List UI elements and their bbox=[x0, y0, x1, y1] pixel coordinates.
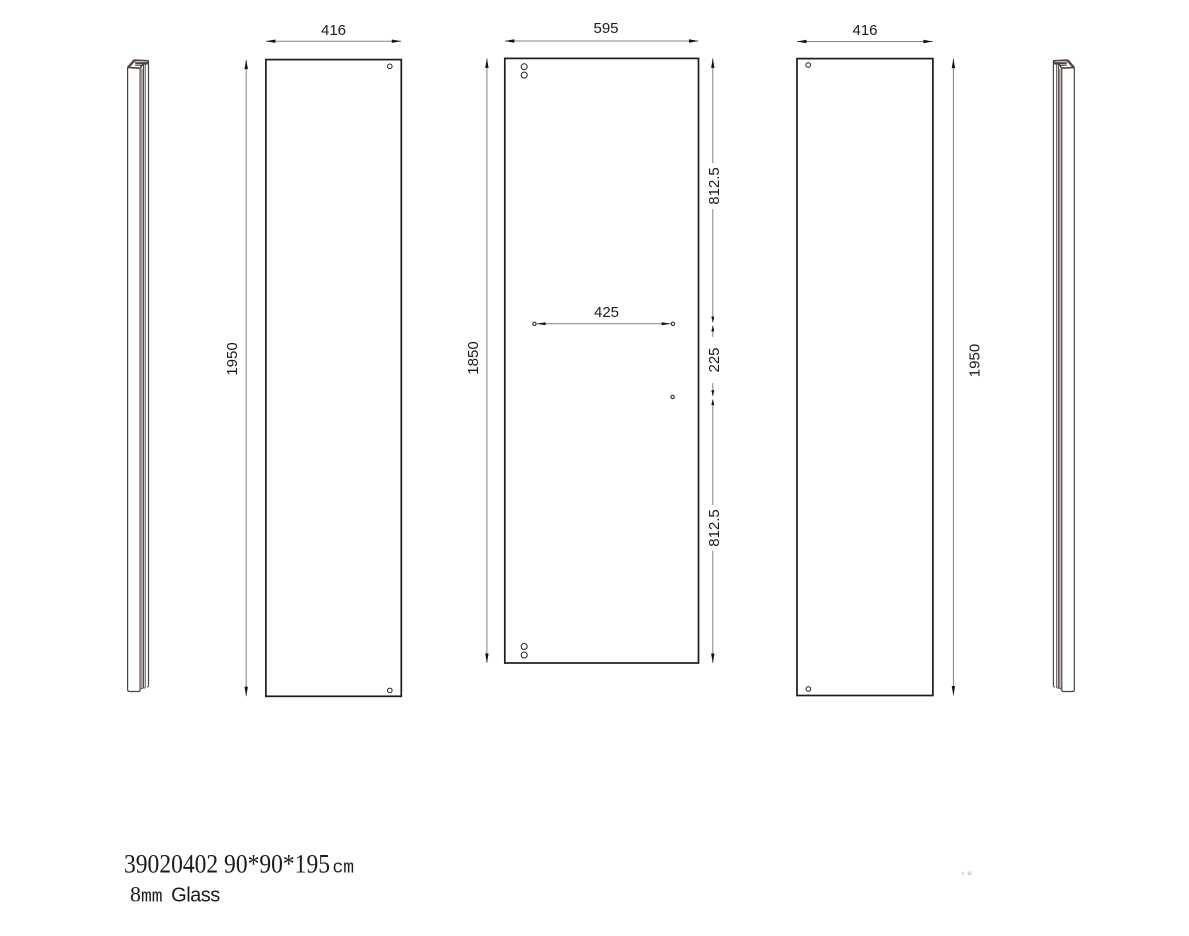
svg-text:cm: cm bbox=[333, 858, 355, 878]
svg-text:425: 425 bbox=[594, 304, 619, 321]
svg-text:416: 416 bbox=[321, 22, 346, 39]
svg-text:812.5: 812.5 bbox=[706, 167, 723, 205]
svg-text:8mm Glass: 8mm Glass bbox=[130, 882, 220, 908]
svg-text:416: 416 bbox=[852, 22, 877, 39]
svg-text:1950: 1950 bbox=[967, 344, 984, 377]
svg-text:595: 595 bbox=[593, 20, 618, 37]
svg-text:1850: 1850 bbox=[465, 341, 482, 374]
svg-text:1950: 1950 bbox=[224, 342, 241, 375]
svg-text:225: 225 bbox=[706, 347, 723, 372]
svg-text:812.5: 812.5 bbox=[706, 509, 723, 547]
svg-text:39020402 90*90*195: 39020402 90*90*195 bbox=[124, 849, 330, 878]
